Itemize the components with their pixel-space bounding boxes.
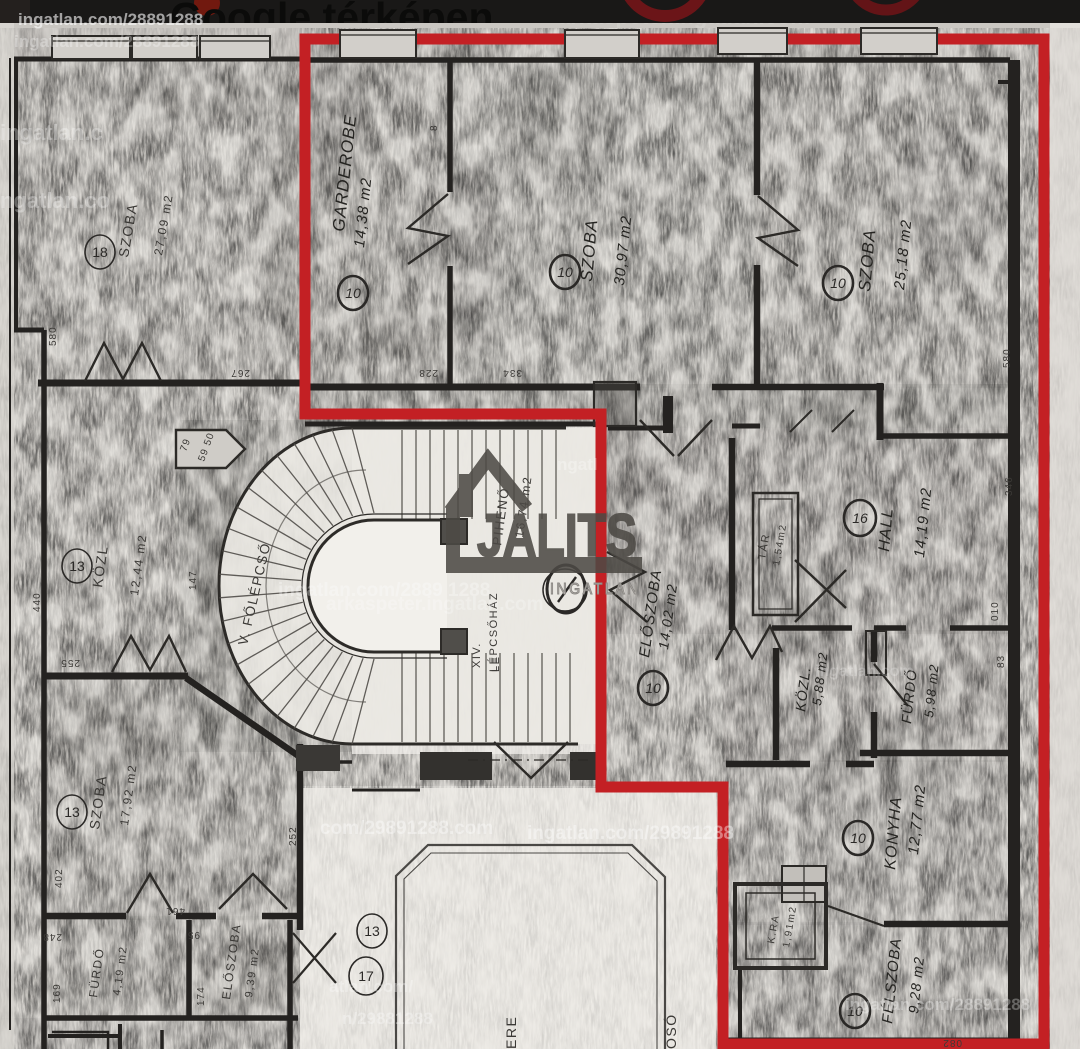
- svg-text:83: 83: [996, 655, 1007, 668]
- svg-text:XIV.: XIV.: [471, 642, 483, 668]
- svg-text:ingatlan.com/28891288: ingatlan.com/28891288: [14, 32, 199, 51]
- svg-text:atlan.com/: atlan.com/: [329, 977, 413, 996]
- svg-text:228: 228: [418, 367, 438, 378]
- svg-text:n/29881288: n/29881288: [342, 1009, 433, 1028]
- svg-text:13: 13: [69, 558, 85, 574]
- svg-text:169: 169: [52, 983, 63, 1003]
- svg-text:010: 010: [990, 601, 1001, 621]
- svg-text:13: 13: [64, 804, 80, 820]
- svg-text:461: 461: [165, 905, 185, 916]
- svg-text:334: 334: [502, 367, 522, 378]
- svg-text:10: 10: [557, 264, 573, 280]
- svg-text:ngatl: ngatl: [557, 455, 598, 474]
- svg-text:147: 147: [188, 570, 199, 590]
- svg-text:16: 16: [852, 510, 868, 526]
- svg-text:ingatlan.com/29891288: ingatlan.com/29891288: [527, 823, 734, 844]
- svg-text:com/29891288.com: com/29891288.com: [320, 818, 493, 839]
- svg-text:248: 248: [42, 931, 62, 942]
- svg-text:ngatlan.co: ngatlan.co: [0, 188, 110, 213]
- svg-text:402: 402: [54, 868, 65, 888]
- svg-text:arkaspeter.ingatlan.com: arkaspeter.ingatlan.com: [326, 594, 544, 615]
- svg-text:440: 440: [32, 592, 43, 612]
- svg-text:ingatlan.c: ingatlan.c: [0, 120, 103, 145]
- svg-text:LE: LE: [490, 656, 502, 672]
- svg-text:174: 174: [196, 986, 207, 1006]
- svg-text:10: 10: [645, 680, 661, 696]
- svg-text:267: 267: [230, 367, 250, 378]
- svg-text:ingatlan.com: ingatlan.com: [815, 663, 914, 680]
- svg-text:18: 18: [92, 244, 108, 260]
- svg-text:JALITS: JALITS: [477, 502, 637, 569]
- svg-text:252: 252: [288, 826, 299, 846]
- svg-text:INGATLAN: INGATLAN: [550, 581, 640, 598]
- svg-text:13: 13: [364, 923, 380, 939]
- svg-text:082: 082: [942, 1037, 962, 1048]
- svg-text:8: 8: [429, 124, 440, 131]
- svg-text:580: 580: [1002, 348, 1013, 368]
- svg-text:ingatlan.com/28891288: ingatlan.com/28891288: [845, 995, 1030, 1014]
- svg-text:255: 255: [60, 657, 80, 668]
- svg-text:ingatlan.com/28891288: ingatlan.com/28891288: [18, 10, 203, 29]
- svg-text:10: 10: [345, 285, 361, 301]
- svg-text:ERE: ERE: [503, 1016, 519, 1049]
- svg-text:95: 95: [187, 929, 200, 940]
- svg-text:OSÓ: OSÓ: [663, 1013, 679, 1049]
- svg-text:346: 346: [1004, 476, 1015, 496]
- svg-text:580: 580: [48, 326, 59, 346]
- svg-text:10: 10: [830, 275, 846, 291]
- svg-text:10: 10: [850, 830, 866, 846]
